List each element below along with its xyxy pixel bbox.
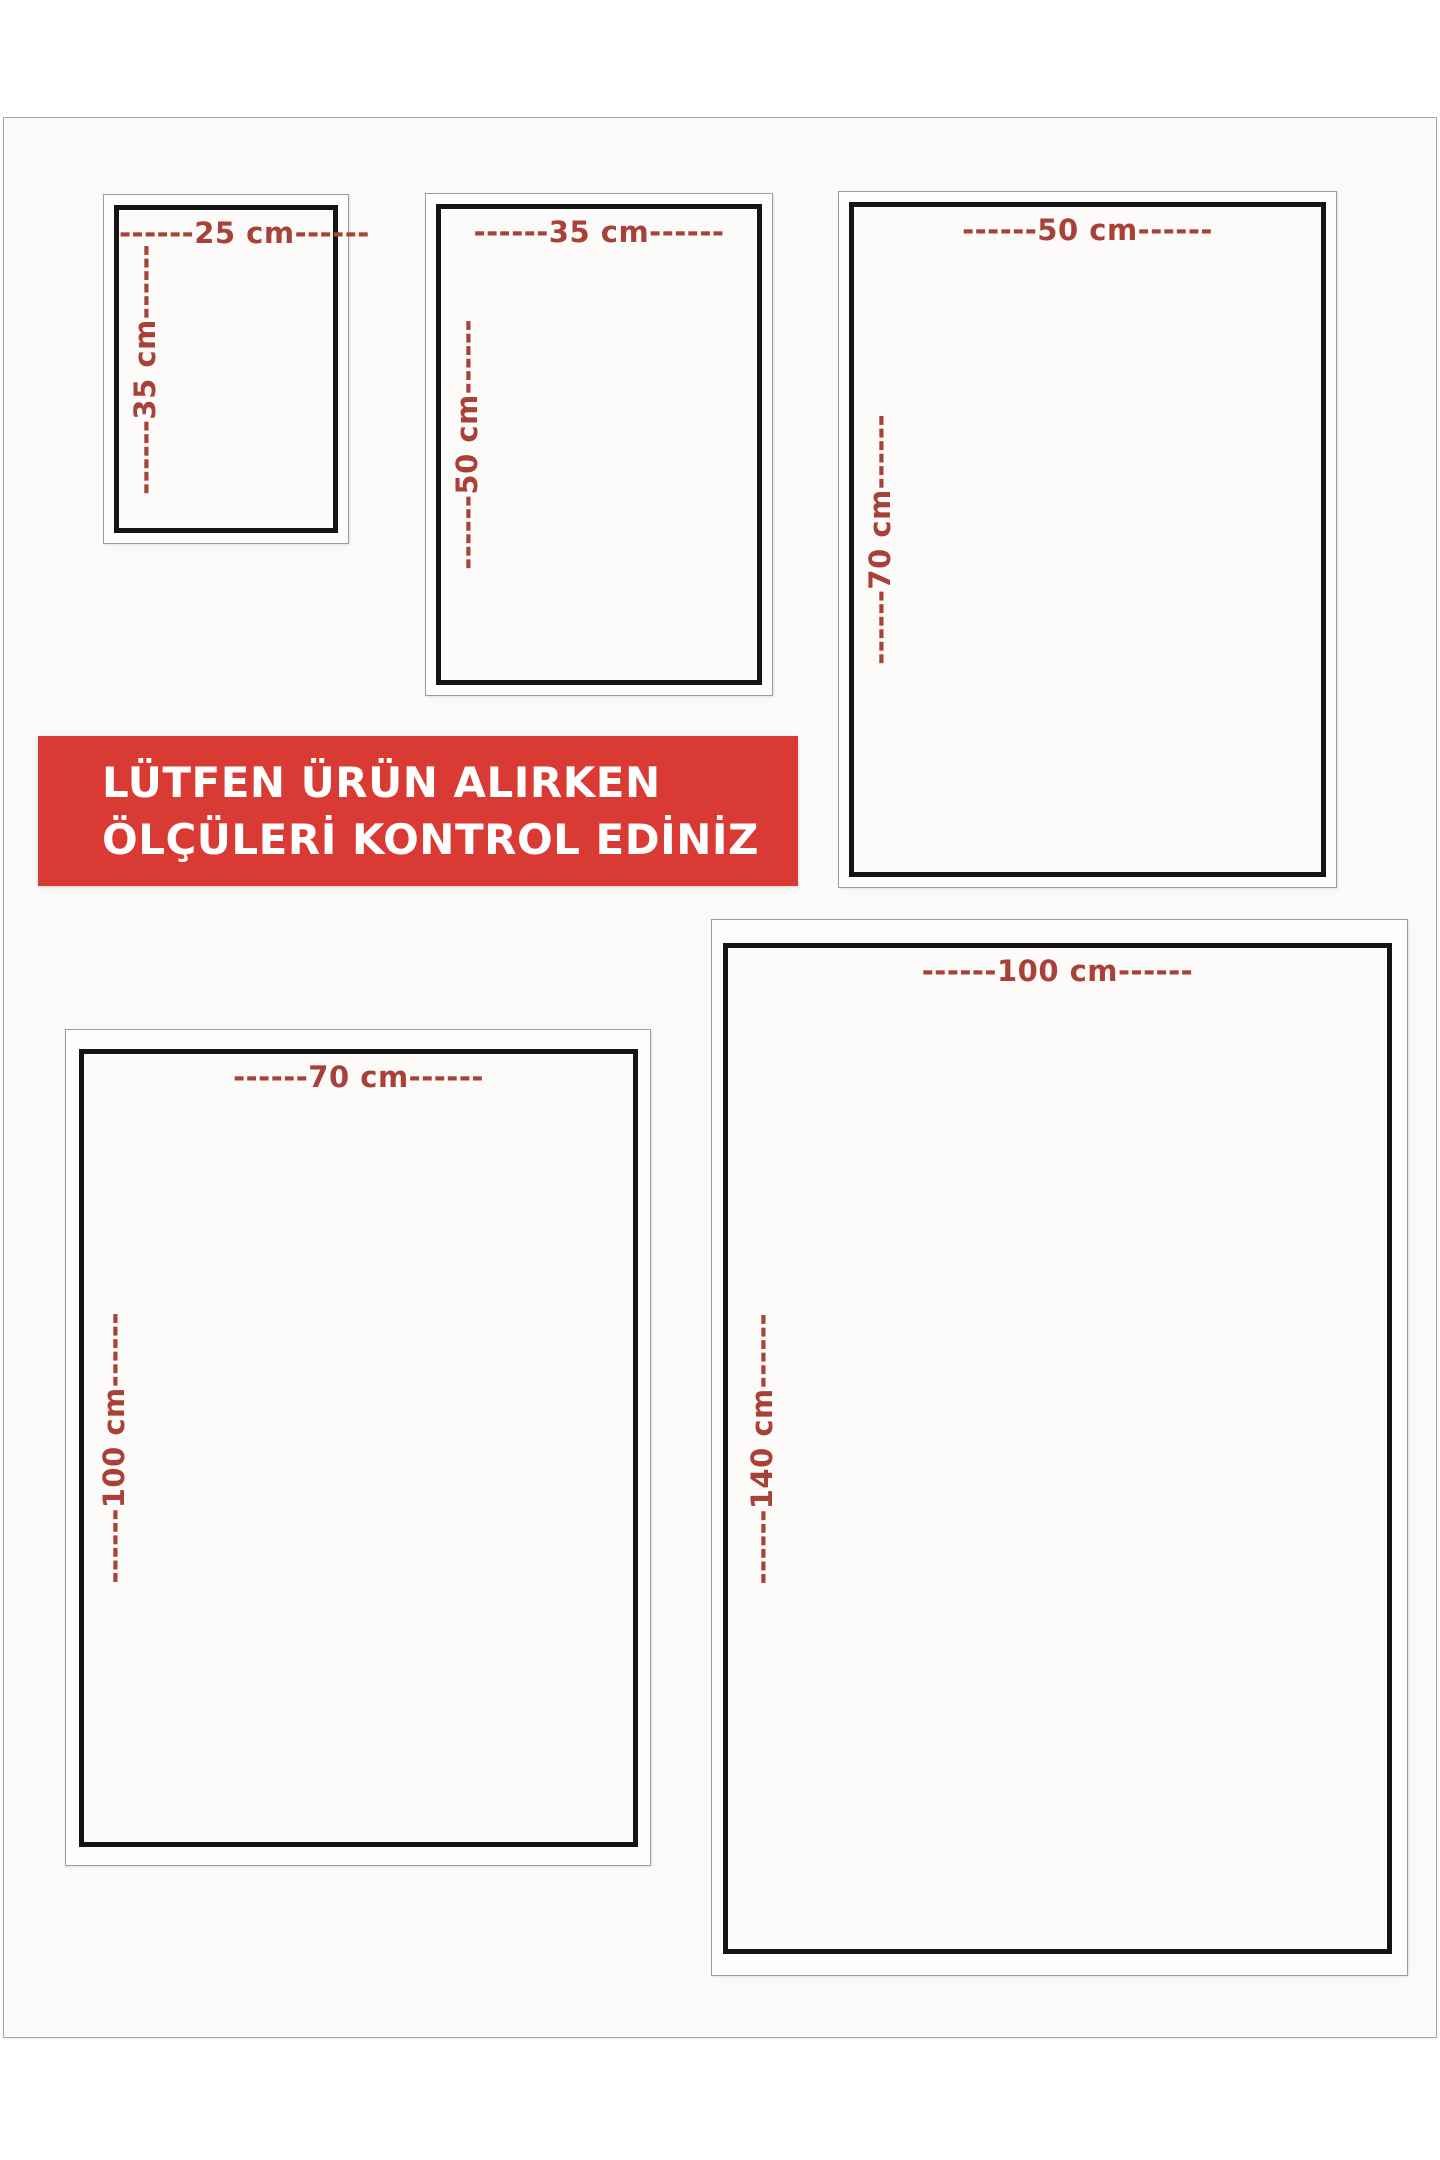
- size-box-35x50-border: ------35 cm------ ------50 cm------: [436, 204, 762, 685]
- height-label-text: ------100 cm------: [97, 1312, 131, 1583]
- height-label: ------70 cm------: [863, 207, 897, 872]
- height-label-text: ------70 cm------: [863, 414, 897, 665]
- size-box-100x140: ------100 cm------ ------140 cm------: [711, 919, 1408, 1976]
- width-label: ------35 cm------: [441, 216, 757, 248]
- size-chart-page: ------25 cm------ ------35 cm------ ----…: [3, 117, 1437, 2038]
- height-label: ------35 cm------: [128, 210, 162, 528]
- size-box-100x140-border: ------100 cm------ ------140 cm------: [723, 943, 1392, 1954]
- size-box-70x100-border: ------70 cm------ ------100 cm------: [79, 1049, 638, 1847]
- width-label: ------70 cm------: [84, 1061, 633, 1093]
- height-label: ------50 cm------: [450, 209, 484, 680]
- size-box-25x35: ------25 cm------ ------35 cm------: [103, 194, 349, 544]
- notice-line-2: ÖLÇÜLERİ KONTROL EDİNİZ: [102, 811, 798, 868]
- size-box-70x100: ------70 cm------ ------100 cm------: [65, 1029, 651, 1866]
- height-label-text: ------140 cm------: [745, 1313, 779, 1584]
- height-label: ------100 cm------: [97, 1054, 131, 1842]
- height-label: ------140 cm------: [745, 948, 779, 1949]
- notice-line-1: LÜTFEN ÜRÜN ALIRKEN: [102, 754, 798, 811]
- height-label-text: ------35 cm------: [128, 244, 162, 495]
- size-chart-image: ------25 cm------ ------35 cm------ ----…: [0, 0, 1440, 2160]
- notice-banner: LÜTFEN ÜRÜN ALIRKEN ÖLÇÜLERİ KONTROL EDİ…: [38, 736, 798, 886]
- size-box-35x50: ------35 cm------ ------50 cm------: [425, 193, 773, 696]
- width-label: ------50 cm------: [854, 214, 1321, 246]
- height-label-text: ------50 cm------: [450, 319, 484, 570]
- width-label: ------100 cm------: [728, 955, 1387, 987]
- size-box-25x35-border: ------25 cm------ ------35 cm------: [114, 205, 338, 533]
- size-box-50x70-border: ------50 cm------ ------70 cm------: [849, 202, 1326, 877]
- size-box-50x70: ------50 cm------ ------70 cm------: [838, 191, 1337, 888]
